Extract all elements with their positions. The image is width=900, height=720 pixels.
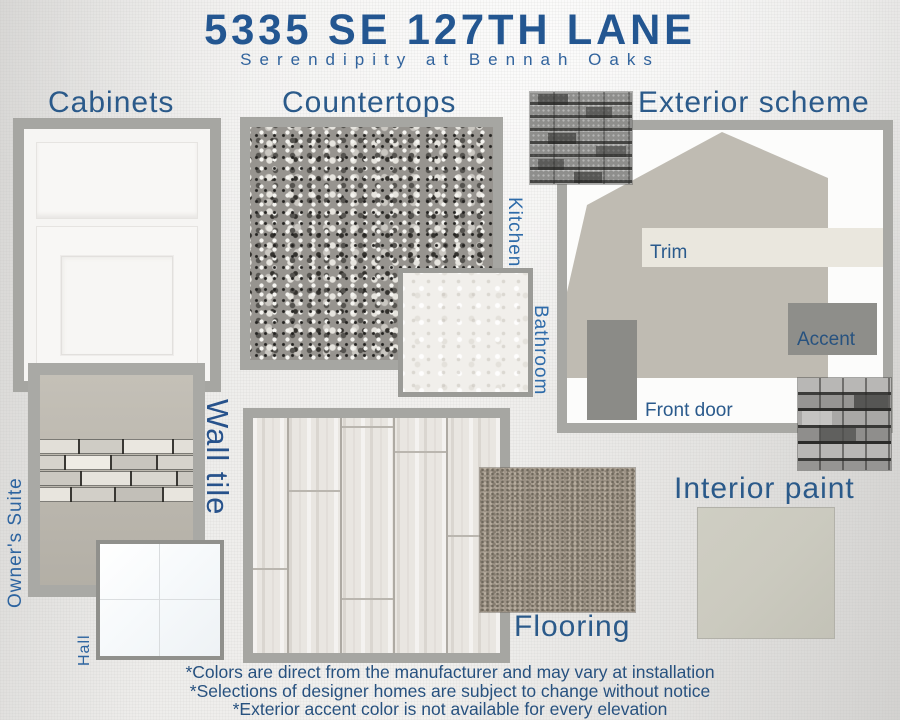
disclaimer-line: *Exterior accent color is not available …: [0, 700, 900, 719]
mosaic-row: [40, 471, 193, 486]
mosaic-row: [40, 439, 193, 454]
design-selections-board: 5335 SE 127TH LANE Serendipity at Bennah…: [0, 0, 900, 720]
front-door-label: Front door: [645, 400, 733, 422]
cabinet-drawer-front: [36, 142, 198, 219]
roof-shingles-swatch: [530, 92, 632, 184]
cabinet-door-swatch: [13, 118, 221, 392]
page-subtitle: Serendipity at Bennah Oaks: [0, 50, 900, 70]
interior-paint-heading: Interior paint: [674, 472, 855, 506]
trim-label: Trim: [650, 242, 687, 264]
hall-label: Hall: [76, 620, 94, 666]
bathroom-countertop-swatch: [398, 268, 533, 397]
front-door-color-swatch: [587, 320, 637, 420]
cabinet-door-panel: [61, 256, 173, 355]
wood-flooring-swatch: [243, 408, 510, 663]
flooring-heading: Flooring: [514, 610, 630, 644]
carpet-flooring-swatch: [480, 468, 635, 612]
page-title: 5335 SE 127TH LANE: [14, 6, 887, 55]
mosaic-row: [40, 455, 193, 470]
disclaimer-line: *Colors are direct from the manufacturer…: [0, 663, 900, 682]
mosaic-accent-strip: [40, 439, 193, 503]
kitchen-label: Kitchen: [503, 197, 525, 277]
disclaimer-line: *Selections of designer homes are subjec…: [0, 682, 900, 701]
countertops-heading: Countertops: [282, 86, 456, 120]
cabinets-heading: Cabinets: [48, 86, 174, 120]
disclaimer-text: *Colors are direct from the manufacturer…: [0, 663, 900, 719]
interior-paint-swatch: [697, 507, 835, 639]
hall-wall-tile-swatch: [96, 540, 224, 660]
exterior-scheme-heading: Exterior scheme: [638, 86, 870, 120]
owners-suite-label: Owner's Suite: [5, 456, 27, 608]
accent-label: Accent: [797, 329, 855, 351]
mosaic-row: [40, 487, 193, 502]
bathroom-label: Bathroom: [529, 305, 551, 405]
stone-veneer-swatch: [798, 378, 891, 470]
cabinet-door-front: [36, 226, 198, 373]
wall-tile-heading: Wall tile: [199, 399, 235, 521]
